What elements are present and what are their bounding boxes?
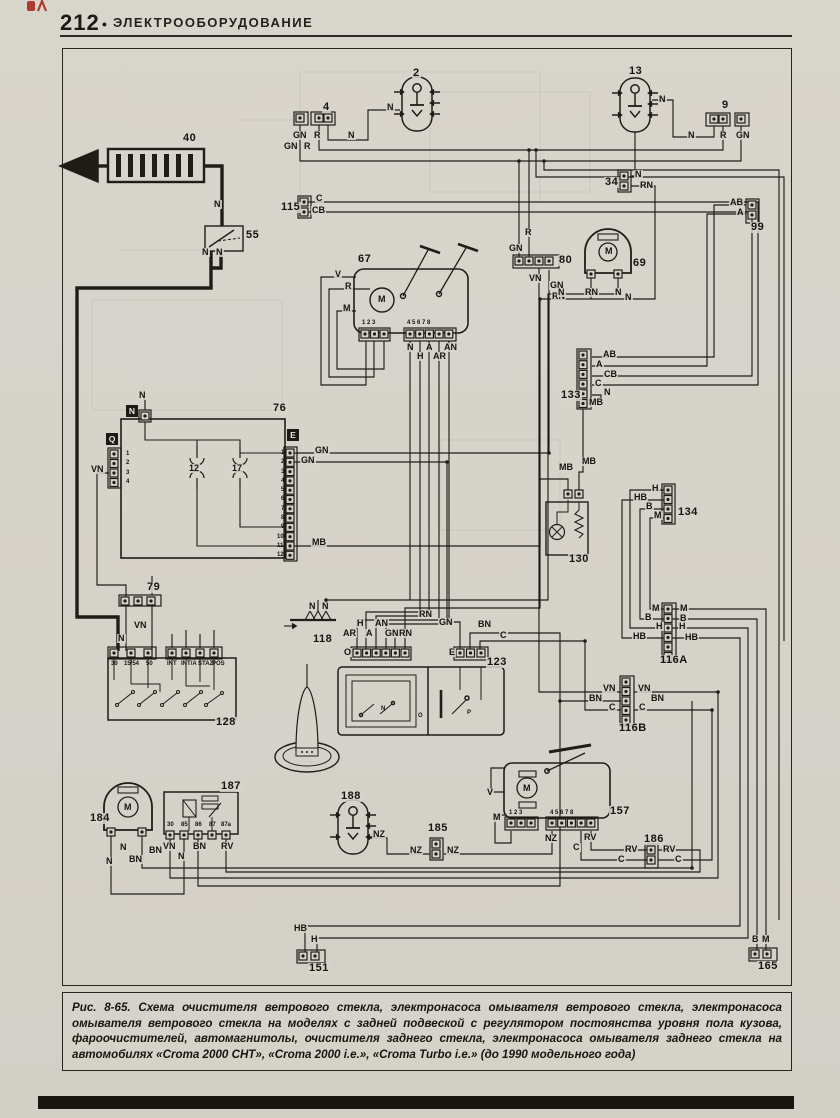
component-number-label: 99 — [750, 222, 765, 233]
scanned-manual-page: 212 • ЭЛЕКТРООБОРУДОВАНИЕ — [0, 0, 840, 1118]
scan-bottom-bar — [38, 1096, 794, 1109]
terminal-label: O — [417, 713, 424, 719]
wire-code-label: VN — [528, 274, 543, 283]
wire-code-label: RN — [418, 610, 433, 619]
wire-code-label: CB — [311, 206, 326, 215]
terminal-label: 86 — [194, 822, 203, 828]
wire-code-label: N — [386, 103, 395, 112]
terminal-label: 3 — [280, 469, 285, 475]
wire-code-label: B — [645, 502, 654, 511]
wire-code-label: HB — [684, 633, 699, 642]
terminal-label: 4 5 6 7 8 — [549, 810, 574, 816]
terminal-label: N — [380, 706, 386, 712]
wire-code-label: NZ — [409, 846, 423, 855]
wire-code-label: O — [343, 648, 352, 657]
terminal-label: 15/54 — [123, 661, 140, 667]
terminal-label: 50 — [145, 661, 154, 667]
wire-code-label: N — [658, 95, 667, 104]
terminal-label: 4 5 6 7 8 — [406, 320, 431, 326]
wire-code-label: VN — [602, 684, 617, 693]
wire-code-label: C — [638, 703, 647, 712]
component-number-label: 55 — [245, 230, 260, 241]
wire-code-label: A — [595, 360, 604, 369]
wire-code-label: MB — [581, 457, 597, 466]
connector-badge: E — [287, 429, 299, 441]
wire-code-label: BN — [128, 855, 143, 864]
wire-code-label: VN — [162, 842, 177, 851]
wire-code-label: RN — [398, 629, 413, 638]
wire-code-label: VN — [133, 621, 148, 630]
terminal-label: 3 — [125, 470, 130, 476]
wire-code-label: GN — [735, 131, 751, 140]
wire-code-label: M — [492, 813, 502, 822]
terminal-label: 9 — [280, 524, 285, 530]
wire-code-label: A — [736, 208, 745, 217]
terminal-label: P — [466, 710, 472, 716]
wire-code-label: CB — [603, 370, 618, 379]
wire-code-label: M — [604, 247, 614, 256]
component-number-label: 40 — [182, 133, 197, 144]
wire-code-label: M — [653, 511, 663, 520]
wire-code-label: R — [719, 131, 728, 140]
component-number-label: 116B — [618, 723, 648, 734]
wire-code-label: H — [310, 935, 319, 944]
terminal-label: 12 — [276, 552, 285, 558]
wire-code-label: HB — [632, 632, 647, 641]
wire-code-label: MB — [311, 538, 327, 547]
component-number-label: 186 — [643, 834, 665, 845]
terminal-label: POS — [211, 661, 226, 667]
wire-code-label: N — [308, 602, 317, 611]
wire-code-label: AB — [729, 198, 744, 207]
component-number-label: 69 — [632, 258, 647, 269]
wire-code-label: C — [608, 703, 617, 712]
wire-code-label: BN — [148, 846, 163, 855]
wire-code-label: MB — [588, 398, 604, 407]
wire-code-label: N — [215, 248, 224, 257]
terminal-label: INT/A — [180, 661, 198, 667]
wire-code-label: M — [377, 295, 387, 304]
wire-code-label: GN — [283, 142, 299, 151]
wire-code-label: NZ — [544, 834, 558, 843]
wire-code-label: R — [303, 142, 312, 151]
wire-code-label: N — [138, 391, 147, 400]
terminal-label: 30 — [166, 822, 175, 828]
wire-code-label: C — [594, 379, 603, 388]
wire-code-label: N — [406, 343, 415, 352]
wire-code-label: C — [572, 843, 581, 852]
wire-code-label: GN — [314, 446, 330, 455]
terminal-label: 2 — [280, 459, 285, 465]
terminal-label: 4 — [280, 478, 285, 484]
wire-code-label: C — [315, 194, 324, 203]
wire-code-label: M — [651, 604, 661, 613]
component-number-label: 76 — [272, 403, 287, 414]
terminal-label: 11 — [276, 543, 284, 549]
wire-code-label: N — [557, 288, 566, 297]
wire-code-label: N — [117, 634, 126, 643]
component-number-label: 115 — [280, 202, 301, 213]
wire-code-label: B — [644, 613, 653, 622]
terminal-label: 2 — [125, 460, 130, 466]
wire-code-label: B — [751, 935, 760, 944]
component-number-label: 134 — [677, 507, 699, 518]
wire-code-label: N — [634, 170, 643, 179]
component-number-label: 157 — [609, 806, 631, 817]
wire-code-label: M — [522, 784, 532, 793]
component-number-label: 79 — [146, 582, 161, 593]
wire-code-label: R — [313, 131, 322, 140]
component-number-label: 128 — [215, 717, 237, 728]
component-number-label: 187 — [220, 781, 242, 792]
wire-code-label: VN — [637, 684, 652, 693]
terminal-label: 10 — [276, 534, 285, 540]
wire-code-label: A — [365, 629, 374, 638]
wire-code-label: GN — [438, 618, 454, 627]
wire-code-label: C — [674, 855, 683, 864]
wire-code-label: AR — [342, 629, 357, 638]
wire-code-label: M — [123, 803, 133, 812]
wire-code-label: E — [448, 648, 456, 657]
terminal-label: 87a — [220, 822, 232, 828]
wire-code-label: BN — [192, 842, 207, 851]
wire-code-label: VN — [90, 465, 105, 474]
diagram-labels: 24913344055676976798099115116A116B118123… — [0, 0, 840, 1118]
terminal-label: 85 — [180, 822, 189, 828]
component-number-label: 80 — [558, 255, 573, 266]
wire-code-label: C — [617, 855, 626, 864]
wire-code-label: V — [486, 788, 494, 797]
wire-code-label: AN — [374, 619, 389, 628]
terminal-label: 1 2 3 — [508, 810, 523, 816]
wire-code-label: H — [651, 484, 660, 493]
component-number-label: 185 — [427, 823, 449, 834]
wire-code-label: GN — [292, 131, 308, 140]
wire-code-label: N — [213, 200, 222, 209]
component-number-label: 2 — [412, 68, 421, 79]
wire-code-label: M — [679, 604, 689, 613]
wire-code-label: BN — [588, 694, 603, 703]
wire-code-label: NZ — [446, 846, 460, 855]
figure-caption: Рис. 8-65. Схема очистителя ветрового ст… — [62, 992, 792, 1071]
wire-code-label: V — [334, 270, 342, 279]
connector-badge: Q — [106, 433, 118, 445]
wire-code-label: R — [524, 228, 533, 237]
component-number-label: 118 — [312, 634, 333, 645]
wire-code-label: N — [105, 857, 114, 866]
wire-code-label: N — [614, 288, 623, 297]
wire-code-label: 17 — [231, 464, 243, 473]
wire-code-label: H — [655, 622, 664, 631]
component-number-label: 151 — [308, 963, 330, 974]
terminal-label: 8 — [280, 515, 285, 521]
wire-code-label: RV — [624, 845, 638, 854]
component-number-label: 130 — [568, 554, 590, 565]
terminal-label: 1 — [125, 451, 130, 457]
wire-code-label: RV — [220, 842, 234, 851]
terminal-label: 6 — [280, 496, 285, 502]
component-number-label: 9 — [721, 100, 730, 111]
wire-code-label: M — [761, 935, 771, 944]
component-number-label: 133 — [560, 390, 582, 401]
wire-code-label: HB — [293, 924, 308, 933]
wire-code-label: C — [499, 631, 508, 640]
wire-code-label: N — [603, 388, 612, 397]
component-number-label: 165 — [757, 961, 779, 972]
wire-code-label: N — [119, 843, 128, 852]
wire-code-label: BN — [477, 620, 492, 629]
wire-code-label: MB — [558, 463, 574, 472]
wire-code-label: H — [416, 352, 425, 361]
component-number-label: 13 — [628, 66, 643, 77]
terminal-label: 87 — [208, 822, 217, 828]
wire-code-label: R — [344, 282, 353, 291]
wire-code-label: N — [687, 131, 696, 140]
terminal-label: 30 — [110, 661, 119, 667]
terminal-label: 7 — [280, 506, 285, 512]
terminal-label: 1 — [280, 450, 285, 456]
wire-code-label: AB — [602, 350, 617, 359]
wire-code-label: N — [624, 293, 633, 302]
wire-code-label: N — [201, 248, 210, 257]
wire-code-label: GN — [300, 456, 316, 465]
component-number-label: 4 — [322, 102, 331, 113]
wire-code-label: AR — [432, 352, 447, 361]
component-number-label: 34 — [604, 177, 619, 188]
wire-code-label: RV — [583, 833, 597, 842]
component-number-label: 67 — [357, 254, 372, 265]
wire-code-label: RN — [639, 181, 654, 190]
wire-code-label: M — [342, 304, 352, 313]
wire-code-label: H — [678, 622, 687, 631]
wire-code-label: BN — [650, 694, 665, 703]
wire-code-label: AN — [443, 343, 458, 352]
wire-code-label: 12 — [188, 464, 200, 473]
terminal-label: 5 — [280, 487, 285, 493]
wire-code-label: GN — [508, 244, 524, 253]
wire-code-label: RV — [662, 845, 676, 854]
terminal-label: 4 — [125, 479, 130, 485]
connector-badge: N — [126, 405, 138, 417]
wire-code-label: H — [356, 619, 365, 628]
wire-code-label: N — [177, 852, 186, 861]
component-number-label: 184 — [89, 813, 111, 824]
wire-code-label: NZ — [372, 830, 386, 839]
component-number-label: 116A — [659, 655, 689, 666]
wire-code-label: N — [347, 131, 356, 140]
terminal-label: INT — [166, 661, 178, 667]
component-number-label: 123 — [486, 657, 508, 668]
component-number-label: 188 — [340, 791, 362, 802]
wire-code-label: N — [321, 602, 330, 611]
terminal-label: 1 2 3 — [361, 320, 376, 326]
wire-code-label: RN — [584, 288, 599, 297]
